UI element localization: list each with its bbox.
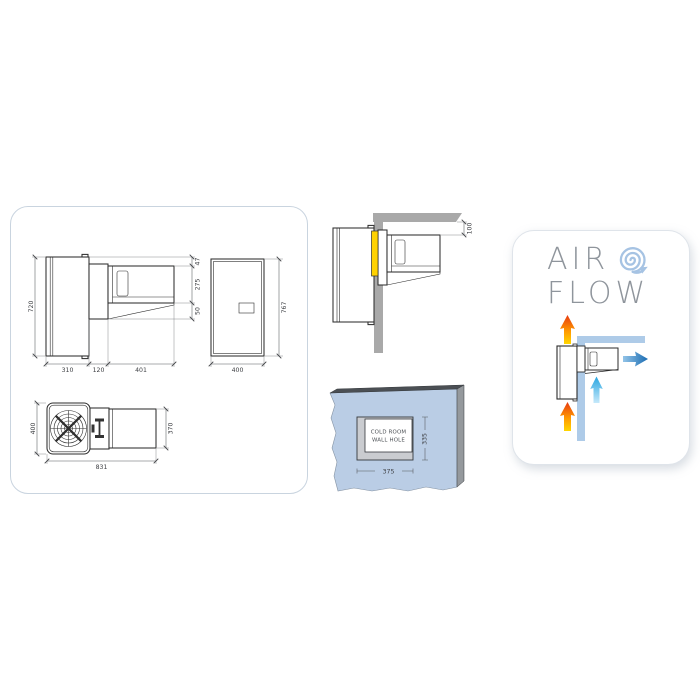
through-wall-section (577, 346, 585, 372)
condenser-section (333, 228, 374, 322)
dim-side-depth-wall: 120 (93, 367, 105, 374)
dim-hole-height: 335 (422, 433, 429, 445)
dim-side-indoor-height: 275 (195, 279, 202, 291)
cold-air-supply-arrow-icon (623, 352, 648, 367)
dim-ceiling-clearance: 100 (467, 223, 474, 235)
air-flow-card: AIR FLOW (512, 230, 690, 465)
dim-front-width: 400 (232, 367, 244, 374)
top-view-drawing: 400 370 831 (30, 403, 175, 471)
air-flow-title-row: AIR (513, 231, 689, 279)
exhaust-air-arrow-icon (560, 315, 575, 344)
page: 720 47 275 50 310 120 401 (0, 0, 700, 700)
dim-top-width-condenser: 400 (30, 423, 37, 435)
return-air-arrow-icon (590, 377, 603, 404)
dim-top-length-total: 831 (96, 464, 108, 471)
fan-icon (51, 411, 87, 447)
side-view-drawing: 720 47 275 50 310 120 401 (28, 254, 202, 374)
dim-side-height: 720 (28, 301, 35, 313)
ceiling (577, 336, 645, 343)
dimensions-panel: 720 47 275 50 310 120 401 (10, 206, 308, 494)
wall-hole (365, 419, 412, 452)
dim-side-depth-evaporator: 401 (135, 367, 147, 374)
intake-air-arrow-icon (560, 402, 575, 431)
wall-hole-label-line1: COLD ROOM (371, 430, 407, 436)
cold-room-wall-hole-view: COLD ROOM WALL HOLE 375 335 (328, 378, 474, 500)
dim-front-height: 767 (281, 302, 288, 314)
sealing-gasket (372, 231, 379, 276)
dim-hole-width: 375 (383, 469, 395, 476)
dimension-drawings: 720 47 275 50 310 120 401 (11, 207, 307, 493)
front-view-drawing: 767 400 (211, 259, 288, 374)
wall-hole-label-line2: WALL HOLE (372, 438, 405, 444)
through-wall-section (378, 230, 387, 285)
ceiling (373, 213, 462, 222)
dim-side-bottom-lip: 50 (195, 307, 202, 315)
air-deflector-flap (108, 303, 174, 319)
ceiling-clearance-dimension: 100 (441, 222, 474, 235)
air-flow-title-line2: FLOW (513, 279, 689, 308)
air-swirl-icon (611, 247, 653, 279)
dim-side-depth-condenser: 310 (62, 367, 74, 374)
wall-right-edge (457, 385, 464, 487)
air-flow-diagram (537, 311, 669, 451)
air-deflector-flap (387, 272, 440, 285)
air-flow-title-line1: AIR (547, 245, 609, 274)
dim-top-width-evaporator: 370 (168, 423, 175, 435)
wall-mount-section-view: 100 (325, 200, 480, 365)
dim-side-top-gap: 47 (195, 258, 202, 266)
